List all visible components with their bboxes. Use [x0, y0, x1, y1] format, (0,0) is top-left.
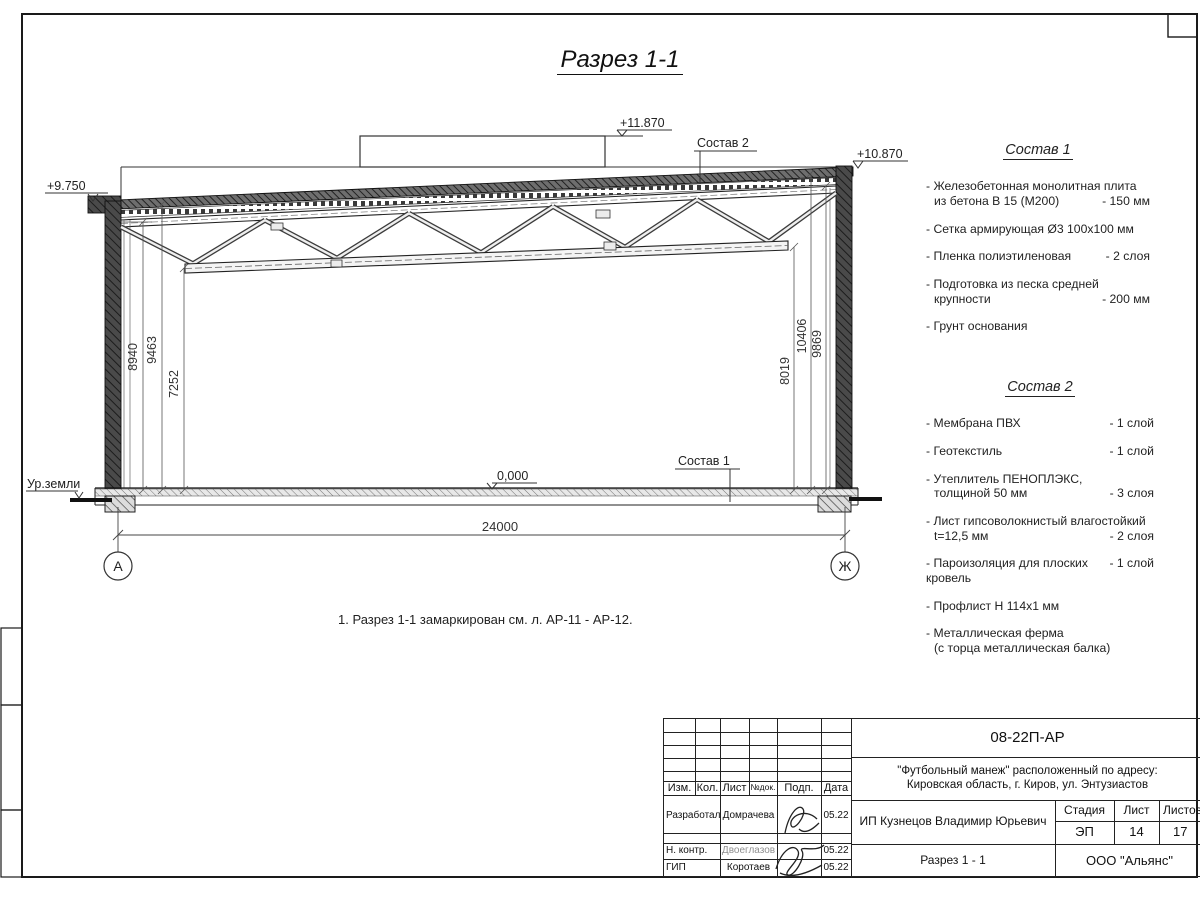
composition-2-title: Состав 2: [926, 379, 1154, 396]
left-margin-boxes: [1, 628, 22, 877]
tb-sheet-label: Лист: [1114, 800, 1159, 821]
tb-header-data: Дата: [821, 781, 851, 795]
tb-role-developer: Разработал: [666, 807, 720, 825]
elev-floor: 0,000: [497, 469, 528, 483]
wall-inner-lines: [124, 188, 830, 488]
tb-date-developer: 05.22: [821, 809, 851, 823]
composition-1-title: Состав 1: [926, 142, 1150, 159]
elev-left: +9.750: [47, 179, 86, 193]
dim-8019: 8019: [778, 357, 792, 385]
axis-zh: Ж: [839, 558, 852, 574]
roof: [88, 167, 853, 227]
list-item: - Подготовка из песка средней крупности-…: [926, 277, 1150, 306]
list-item: - Грунт основания: [926, 319, 1150, 334]
tb-stage-value: ЭП: [1055, 821, 1114, 844]
elev-right: +10.870: [857, 147, 903, 161]
floor-slab: [70, 488, 882, 512]
right-wall: [836, 166, 852, 490]
list-item: - Профлист Н 114х1 мм: [926, 599, 1154, 614]
signature-developer: [779, 799, 823, 841]
dim-24000: 24000: [482, 519, 518, 534]
list-item: - Мембрана ПВХ- 1 слой: [926, 416, 1154, 431]
tb-header-list: Лист: [720, 781, 749, 795]
left-wall: [105, 201, 121, 490]
list-item: - Пароизоляция для плоских кровель- 1 сл…: [926, 556, 1154, 585]
tb-doc-number: 08-22П-АР: [851, 719, 1200, 757]
tb-sheet-value: 14: [1114, 821, 1159, 844]
tb-name-ncontrol: Двоеглазов: [720, 843, 777, 859]
tb-client: ИП Кузнецов Владимир Юрьевич: [851, 800, 1055, 844]
tb-project-name: "Футбольный манеж" расположенный по адре…: [851, 757, 1200, 800]
dim-7252: 7252: [167, 370, 181, 398]
drawing-note: 1. Разрез 1-1 замаркирован см. л. АР-11 …: [338, 612, 633, 627]
dim-10406: 10406: [795, 319, 809, 354]
top-right-box: [1168, 14, 1197, 37]
axis-a: А: [113, 558, 123, 574]
roof-truss: [121, 193, 836, 273]
comp1-callout: Состав 1: [678, 454, 730, 468]
axis-markers: А Ж: [104, 552, 859, 580]
list-item: - Утеплитель ПЕНОПЛЭКС, толщиной 50 мм- …: [926, 472, 1154, 501]
comp2-callout: Состав 2: [697, 136, 749, 150]
tb-role-gip: ГИП: [666, 859, 720, 876]
tb-header-ndok: №док.: [749, 781, 777, 795]
tb-company: ООО "Альянс": [1055, 844, 1200, 878]
tb-date-gip: 05.22: [821, 859, 851, 876]
tb-stage-label: Стадия: [1055, 800, 1114, 821]
list-item: - Железобетонная монолитная плита из бет…: [926, 179, 1150, 208]
tb-role-ncontrol: Н. контр.: [666, 843, 720, 859]
composition-1-block: Состав 1 - Железобетонная монолитная пли…: [926, 142, 1150, 347]
title-block: Изм. Кол. Лист №док. Подп. Дата Разработ…: [663, 718, 1200, 877]
dim-9869: 9869: [810, 330, 824, 358]
ground-level-label: Ур.земли: [27, 477, 80, 491]
dim-8940: 8940: [126, 343, 140, 371]
tb-header-izm: Изм.: [664, 781, 695, 795]
elev-top: +11.870: [620, 116, 665, 130]
tb-name-developer: Домрачева: [720, 807, 777, 825]
list-item: - Геотекстиль- 1 слой: [926, 444, 1154, 459]
tb-header-podp: Подп.: [777, 781, 821, 795]
list-item: - Лист гипсоволокнистый влагостойкий t=1…: [926, 514, 1154, 543]
right-foundation: [818, 496, 851, 512]
list-item: - Металлическая ферма (с торца металличе…: [926, 626, 1154, 655]
tb-sheets-value: 17: [1159, 821, 1200, 844]
dim-9463: 9463: [145, 336, 159, 364]
drawing-sheet: { "page": { "title": "Разрез 1-1", "note…: [0, 0, 1200, 900]
list-item: - Сетка армирующая Ø3 100х100 мм: [926, 222, 1150, 237]
page-title: Разрез 1-1: [540, 46, 700, 74]
list-item: - Пленка полиэтиленовая- 2 слоя: [926, 249, 1150, 264]
roof-exit-box: [360, 136, 605, 167]
tb-name-gip: Коротаев: [720, 859, 777, 876]
composition-2-block: Состав 2 - Мембрана ПВХ- 1 слой - Геотек…: [926, 379, 1154, 668]
tb-drawing-title: Разрез 1 - 1: [851, 844, 1055, 878]
tb-header-kol: Кол.: [695, 781, 720, 795]
tb-date-ncontrol: 05.22: [821, 843, 851, 859]
tb-sheets-label: Листов: [1159, 800, 1200, 821]
